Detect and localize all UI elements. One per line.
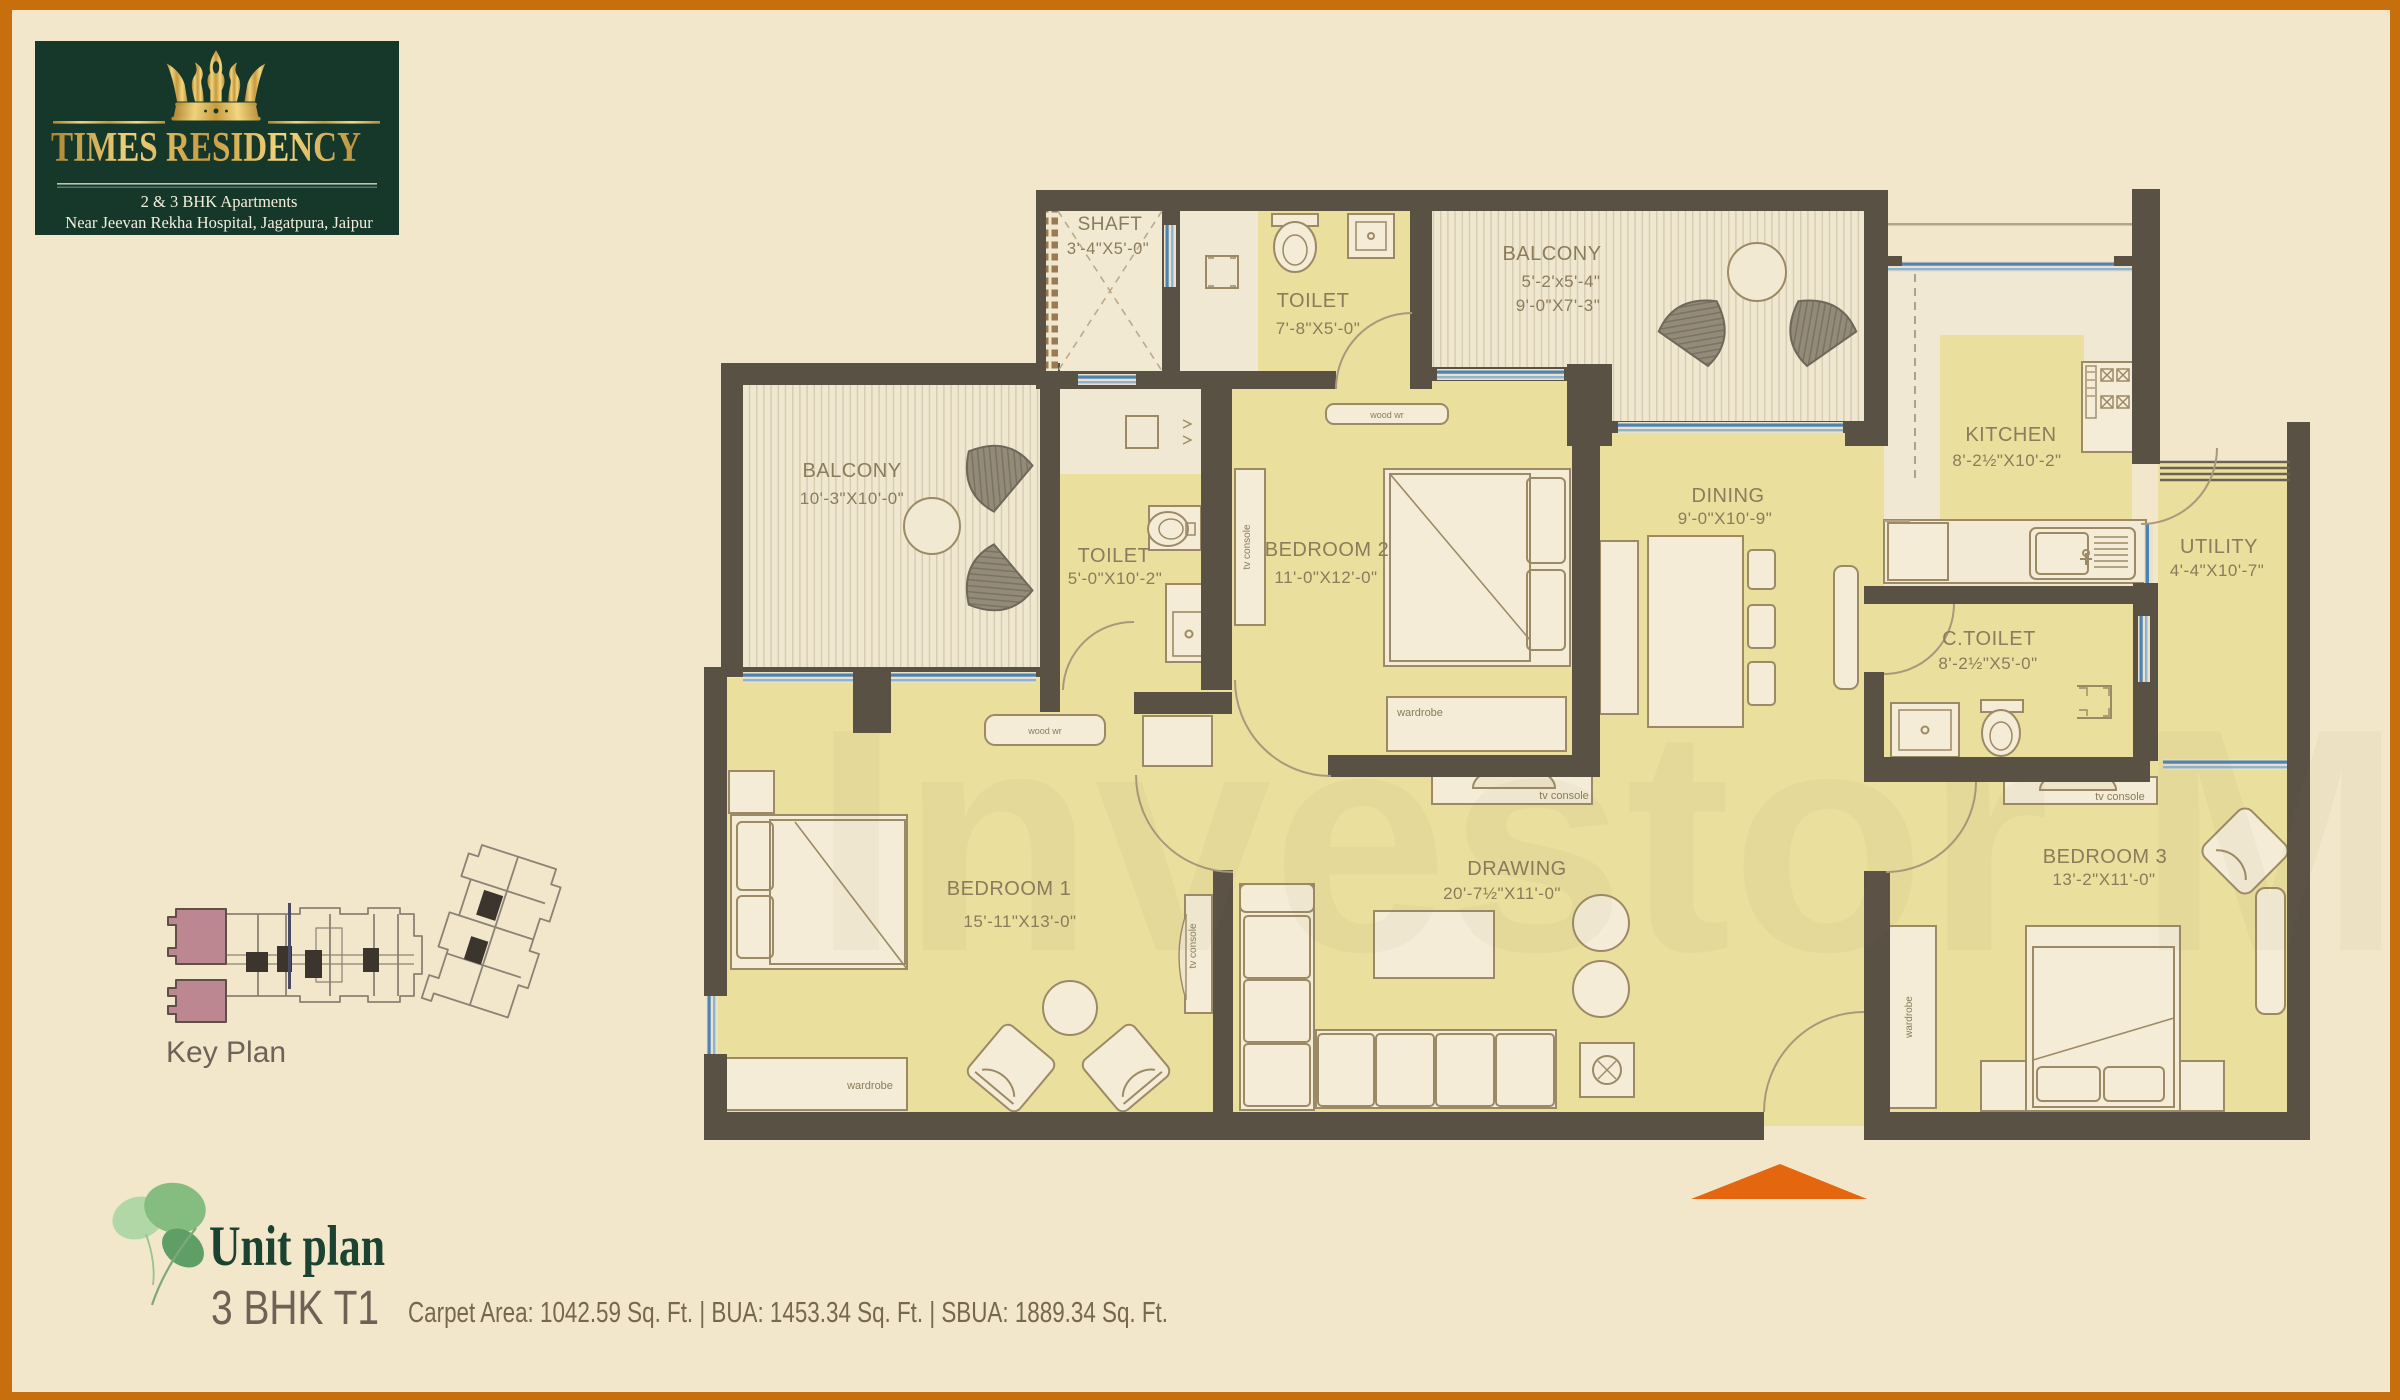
svg-text:BALCONY: BALCONY <box>802 460 901 482</box>
svg-text:5'-2'x5'-4": 5'-2'x5'-4" <box>1522 272 1601 291</box>
svg-text:Key Plan: Key Plan <box>166 1036 286 1069</box>
svg-text:C.TOILET: C.TOILET <box>1942 628 2036 650</box>
svg-text:8'-2½"X10'-2": 8'-2½"X10'-2" <box>1952 451 2061 470</box>
svg-text:Unit plan: Unit plan <box>209 1215 385 1278</box>
svg-text:4'-4"X10'-7": 4'-4"X10'-7" <box>2170 561 2265 580</box>
svg-text:2 & 3 BHK Apartments: 2 & 3 BHK Apartments <box>141 192 298 211</box>
svg-text:TOILET: TOILET <box>1078 545 1151 567</box>
svg-text:TIMES RESIDENCY: TIMES RESIDENCY <box>51 125 361 171</box>
svg-text:Near Jeevan Rekha Hospital, Ja: Near Jeevan Rekha Hospital, Jagatpura, J… <box>65 213 373 232</box>
svg-text:11'-0"X12'-0": 11'-0"X12'-0" <box>1274 568 1377 587</box>
svg-text:10'-3"X10'-0": 10'-3"X10'-0" <box>800 489 904 508</box>
svg-text:Carpet Area: 1042.59 Sq. Ft.: Carpet Area: 1042.59 Sq. Ft. | BUA: 1453… <box>408 1297 1168 1329</box>
svg-text:5'-0"X10'-2": 5'-0"X10'-2" <box>1068 569 1163 588</box>
svg-text:Investor Mart: Investor Mart <box>812 663 2400 1018</box>
svg-text:DINING: DINING <box>1692 485 1765 507</box>
svg-text:SHAFT: SHAFT <box>1078 214 1143 235</box>
svg-text:BEDROOM 2: BEDROOM 2 <box>1265 539 1390 561</box>
svg-text:BALCONY: BALCONY <box>1502 243 1601 265</box>
svg-text:KITCHEN: KITCHEN <box>1965 424 2056 446</box>
svg-text:tv console: tv console <box>1242 524 1253 569</box>
svg-text:7'-8"X5'-0": 7'-8"X5'-0" <box>1276 319 1361 338</box>
svg-text:9'-0"X7'-3": 9'-0"X7'-3" <box>1516 296 1601 315</box>
svg-text:TOILET: TOILET <box>1277 290 1350 312</box>
svg-text:3'-4"X5'-0": 3'-4"X5'-0" <box>1067 240 1149 258</box>
svg-text:9'-0"X10'-9": 9'-0"X10'-9" <box>1678 509 1773 528</box>
svg-text:wardrobe: wardrobe <box>846 1080 893 1092</box>
svg-text:wood wr: wood wr <box>1369 410 1404 420</box>
svg-text:UTILITY: UTILITY <box>2180 536 2258 558</box>
svg-text:3 BHK T1: 3 BHK T1 <box>211 1282 379 1335</box>
